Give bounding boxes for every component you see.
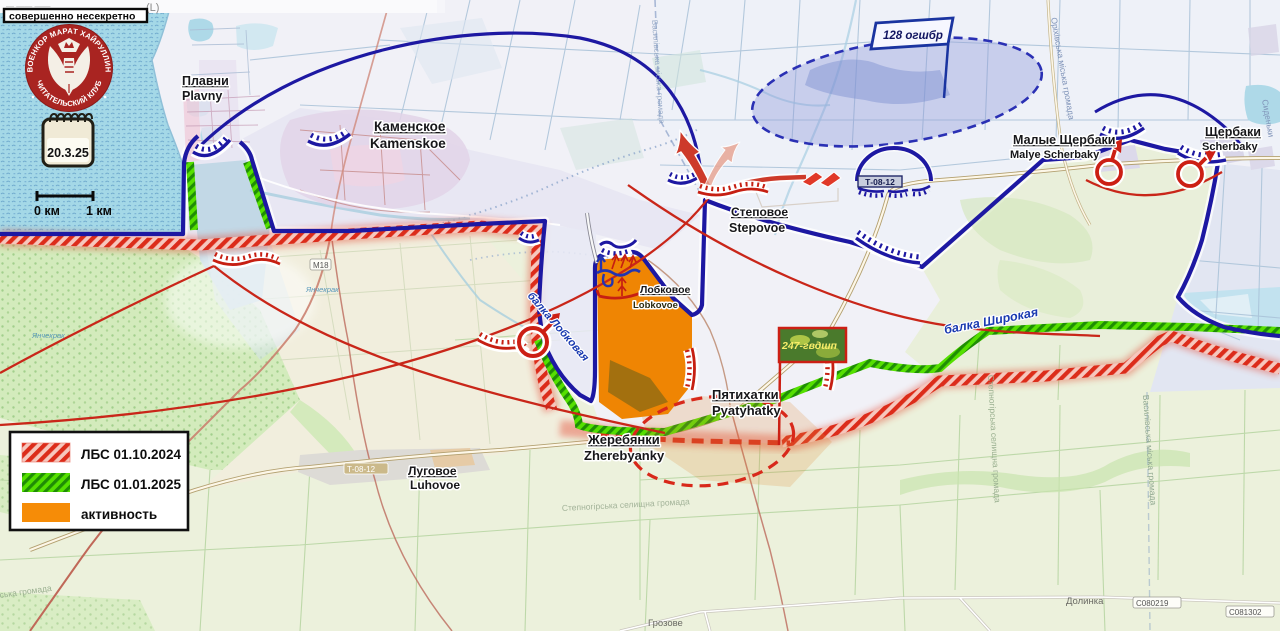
- svg-text:Malye Scherbaky: Malye Scherbaky: [1010, 149, 1100, 161]
- svg-text:Луговое: Луговое: [408, 464, 457, 478]
- svg-text:Stepovoe: Stepovoe: [729, 221, 785, 235]
- svg-text:Янчекрак: Янчекрак: [31, 331, 65, 340]
- svg-text:ЛБС 01.01.2025: ЛБС 01.01.2025: [81, 477, 182, 492]
- svg-text:Pyatyhatky: Pyatyhatky: [712, 403, 781, 418]
- svg-text:Лобковое: Лобковое: [640, 284, 691, 296]
- svg-text:Т-08-12: Т-08-12: [865, 177, 895, 187]
- svg-text:Плавни: Плавни: [182, 74, 229, 88]
- svg-text:Жеребянки: Жеребянки: [587, 432, 660, 447]
- svg-text:Kamenskoe: Kamenskoe: [370, 136, 446, 151]
- svg-text:Каменское: Каменское: [374, 119, 446, 134]
- svg-text:Scherbaky: Scherbaky: [1202, 141, 1259, 153]
- svg-text:Малые Щербаки: Малые Щербаки: [1013, 133, 1116, 147]
- svg-text:Пятихатки: Пятихатки: [712, 387, 779, 402]
- svg-text:С081302: С081302: [1229, 608, 1262, 617]
- svg-text:С080219: С080219: [1136, 599, 1169, 608]
- svg-text:Plavny: Plavny: [182, 89, 222, 103]
- svg-text:1 км: 1 км: [86, 204, 112, 218]
- svg-text:Luhovoe: Luhovoe: [410, 478, 460, 492]
- svg-text:Щербаки: Щербаки: [1205, 125, 1261, 139]
- svg-text:М18: М18: [313, 261, 329, 270]
- svg-text:Грозове: Грозове: [648, 618, 683, 629]
- svg-text:активность: активность: [81, 507, 157, 522]
- svg-text:Lobkovoe: Lobkovoe: [633, 300, 678, 311]
- svg-text:128 огшбр: 128 огшбр: [883, 30, 943, 42]
- svg-text:247-гвдшп: 247-гвдшп: [781, 340, 838, 352]
- svg-text:Степовое: Степовое: [731, 205, 788, 219]
- svg-text:совершенно несекретно: совершенно несекретно: [9, 11, 135, 23]
- svg-text:0 км: 0 км: [34, 204, 60, 218]
- svg-text:Долинка: Долинка: [1066, 596, 1104, 607]
- svg-text:Т-08-12: Т-08-12: [347, 465, 376, 474]
- svg-text:ЛБС 01.10.2024: ЛБС 01.10.2024: [81, 447, 182, 462]
- svg-text:Zherebyanky: Zherebyanky: [584, 448, 665, 463]
- svg-text:20.3.25: 20.3.25: [47, 146, 89, 160]
- svg-text:Янчекрак: Янчекрак: [305, 285, 339, 294]
